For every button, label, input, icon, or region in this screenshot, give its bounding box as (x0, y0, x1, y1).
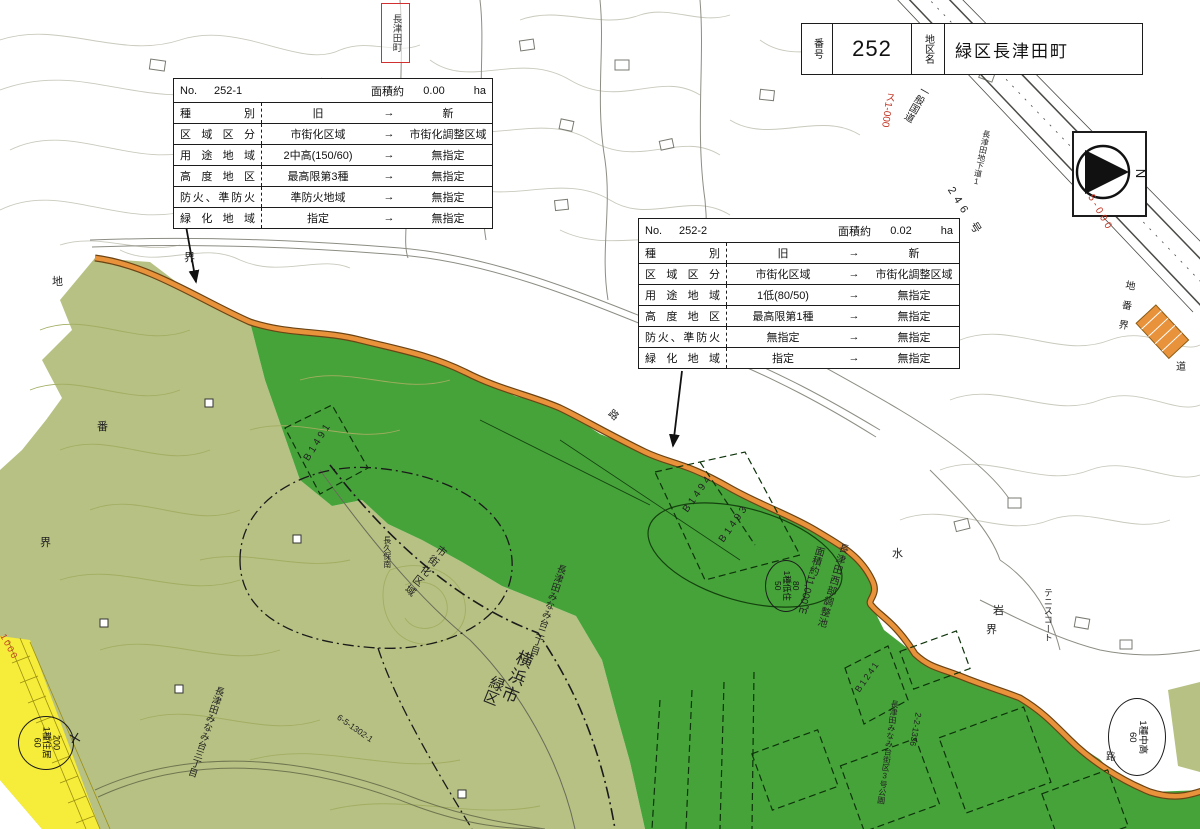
bubble-use: 1種中高 (1137, 720, 1147, 754)
no-label: No. (180, 85, 210, 97)
table-row: 防火、準防火準防火地域→無指定 (174, 186, 492, 207)
table-row: 種別旧→新 (639, 242, 959, 263)
bubble-use: 1種住居 (41, 727, 51, 759)
label-kai-top: 界 (184, 252, 195, 264)
label-kai-right: 界 (986, 624, 997, 636)
district-number-label: 番号 (802, 24, 833, 74)
district-number-value: 252 (833, 24, 912, 74)
table-row: 区域区分市街化区域→市街化調整区域 (639, 263, 959, 284)
label-parcel-chi: 地 (52, 276, 63, 288)
label-michi: 道 (1176, 362, 1186, 373)
table-row: 高度地区最高限第1種→無指定 (639, 305, 959, 326)
table-row: 緑化地域指定→無指定 (174, 207, 492, 228)
zoning-table-252-1: No. 252-1 面積約 0.00 ha 種別旧→新 区域区分市街化区域→市街… (173, 78, 493, 229)
label-nagakubo: 長久保南 (382, 536, 391, 580)
label-parcel-kai: 界 (40, 537, 51, 549)
label-iwa: 岩 (993, 605, 1004, 617)
table-row: 用途地域1低(80/50)→無指定 (639, 284, 959, 305)
zoning-bubble-pond: 80 1種低住 50 (765, 560, 807, 612)
north-label: N (1133, 169, 1148, 178)
area-unit: ha (931, 225, 953, 237)
no-value: 252-1 (214, 85, 284, 97)
area-label: 面積約 (371, 83, 404, 99)
area-unit: ha (464, 85, 486, 97)
no-value: 252-2 (679, 225, 749, 237)
zoning-table-252-2: No. 252-2 面積約 0.02 ha 種別旧→新 区域区分市街化区域→市街… (638, 218, 960, 369)
area-value: 0.02 (875, 225, 927, 237)
table-row: 区域区分市街化区域→市街化調整区域 (174, 123, 492, 144)
bubble-ratio-bottom: 60 (31, 727, 41, 759)
table-row: 用途地域2中高(150/60)→無指定 (174, 144, 492, 165)
district-name-label: 地区名 (912, 24, 945, 74)
town-name-box: 長津田町 (381, 3, 410, 63)
table-row: 種別旧→新 (174, 102, 492, 123)
table-row: 防火、準防火無指定→無指定 (639, 326, 959, 347)
north-arrow: N (1072, 131, 1147, 217)
district-header: 番号 252 地区名 緑区長津田町 (801, 23, 1143, 75)
no-label: No. (645, 225, 675, 237)
zoning-bubble-yellow: 200 1種住居 60 (18, 716, 74, 770)
area-label: 面積約 (838, 223, 871, 239)
zoning-bubble-corner: 1種中高 60 (1108, 698, 1166, 776)
bubble-ratio-top: 200 (51, 727, 61, 759)
table-head: No. 252-2 面積約 0.02 ha (639, 219, 959, 242)
bubble-ratio-bottom: 50 (772, 571, 781, 601)
zoning-map-page: 番号 252 地区名 緑区長津田町 N 長津田町 No. 252-1 面積約 0… (0, 0, 1200, 829)
label-parcel-ban: 番 (97, 421, 108, 433)
table-head: No. 252-1 面積約 0.00 ha (174, 79, 492, 102)
bubble-ratio-top: 80 (791, 571, 800, 601)
bubble-ratio-bottom: 60 (1127, 720, 1137, 754)
area-value: 0.00 (408, 85, 460, 97)
table-row: 緑化地域指定→無指定 (639, 347, 959, 368)
label-water: 水 (892, 548, 903, 560)
label-tennis-court: テニスコート (1042, 588, 1052, 670)
bubble-use: 1種低住 (781, 571, 790, 601)
town-name-label: 長津田町 (389, 14, 403, 52)
district-name-value: 緑区長津田町 (945, 24, 1142, 74)
table-row: 高度地区最高限第3種→無指定 (174, 165, 492, 186)
north-needle (1074, 133, 1141, 211)
